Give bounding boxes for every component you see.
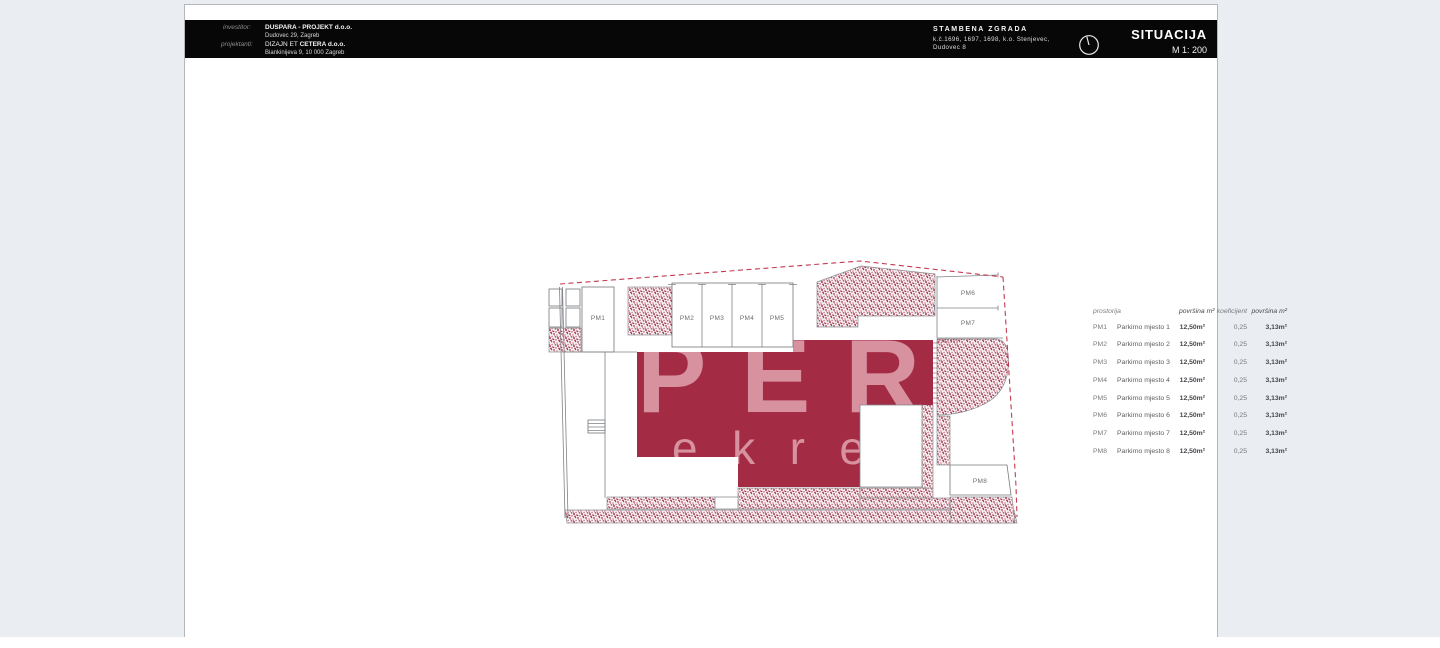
row-area: 12,50m² [1179, 342, 1205, 349]
row-area: 12,50m² [1179, 431, 1205, 438]
row-coef: 0,25 [1205, 396, 1247, 403]
row-area: 12,50m² [1179, 396, 1205, 403]
viewport-bottom-strip [0, 637, 1440, 648]
row-id: PM5 [1093, 396, 1117, 403]
courtyard-notch [860, 405, 922, 487]
paving-southeast [950, 497, 1015, 523]
stairs [588, 420, 605, 433]
row-coef: 0,25 [1205, 449, 1247, 456]
row-area2: 3,13m² [1247, 325, 1287, 332]
table-row: PM1Parkirno mjesto 112,50m²0,253,13m² [1093, 319, 1287, 337]
label-pm2: PM2 [680, 315, 694, 322]
designer-label: projektanti: [221, 41, 253, 48]
row-name: Parkirno mjesto 2 [1117, 342, 1179, 349]
label-pm8: PM8 [973, 478, 987, 485]
hatch-rect-north [628, 287, 672, 335]
row-area2: 3,13m² [1247, 413, 1287, 420]
row-area: 12,50m² [1179, 449, 1205, 456]
designer-name-bold: CETERA d.o.o. [300, 41, 346, 48]
row-area: 12,50m² [1179, 325, 1205, 332]
row-name: Parkirno mjesto 7 [1117, 431, 1179, 438]
paving-band-right [860, 488, 933, 498]
label-pm1: PM1 [591, 315, 605, 322]
site-plan: PER ekre [535, 253, 1027, 531]
paving-band-mid [738, 488, 860, 509]
paving-band-left [607, 497, 715, 509]
table-header-row: prostorija površina m² koeficijent površ… [1093, 305, 1287, 319]
row-area2: 3,13m² [1247, 431, 1287, 438]
row-coef: 0,25 [1205, 413, 1247, 420]
table-row: PM3Parkirno mjesto 312,50m²0,253,13m² [1093, 355, 1287, 373]
label-pm4: PM4 [740, 315, 754, 322]
table-row: PM7Parkirno mjesto 712,50m²0,253,13m² [1093, 426, 1287, 444]
header-prostorija: prostorija [1093, 309, 1179, 316]
row-area2: 3,13m² [1247, 360, 1287, 367]
row-coef: 0,25 [1205, 360, 1247, 367]
row-area2: 3,13m² [1247, 342, 1287, 349]
designer-name: DIZAJN ET CETERA d.o.o. [265, 41, 345, 48]
investor-label: investitor: [223, 24, 251, 31]
row-area: 12,50m² [1179, 413, 1205, 420]
row-name: Parkirno mjesto 5 [1117, 396, 1179, 403]
table-row: PM6Parkirno mjesto 612,50m²0,253,13m² [1093, 408, 1287, 426]
paving-strip-east [937, 416, 950, 465]
row-id: PM3 [1093, 360, 1117, 367]
row-area2: 3,13m² [1247, 449, 1287, 456]
bottom-paving-strip [565, 510, 1017, 523]
paving-band-right2 [860, 498, 950, 509]
table-row: PM5Parkirno mjesto 512,50m²0,253,13m² [1093, 390, 1287, 408]
investor-name: DUSPARA - PROJEKT d.o.o. [265, 24, 352, 31]
row-id: PM7 [1093, 431, 1117, 438]
label-pm7: PM7 [961, 320, 975, 327]
row-coef: 0,25 [1205, 342, 1247, 349]
label-pm5: PM5 [770, 315, 784, 322]
table-row: PM2Parkirno mjesto 212,50m²0,253,13m² [1093, 337, 1287, 355]
row-id: PM6 [1093, 413, 1117, 420]
hatch-blob-east [937, 339, 1008, 415]
row-area: 12,50m² [1179, 378, 1205, 385]
project-address: Dudovec 8 [933, 44, 966, 51]
drawing-scale: M 1: 200 [1131, 45, 1207, 55]
row-name: Parkirno mjesto 3 [1117, 360, 1179, 367]
row-name: Parkirno mjesto 6 [1117, 413, 1179, 420]
pm6-top-line [937, 275, 998, 277]
row-id: PM1 [1093, 325, 1117, 332]
row-coef: 0,25 [1205, 325, 1247, 332]
white-step [715, 497, 738, 509]
header-povrsina-2: površina m² [1247, 309, 1287, 316]
paving-strip-vertical [922, 405, 933, 488]
hatch-polygon-northeast [817, 266, 935, 327]
row-coef: 0,25 [1205, 378, 1247, 385]
row-area: 12,50m² [1179, 360, 1205, 367]
row-id: PM2 [1093, 342, 1117, 349]
row-area2: 3,13m² [1247, 378, 1287, 385]
label-pm3: PM3 [710, 315, 724, 322]
row-id: PM8 [1093, 449, 1117, 456]
row-id: PM4 [1093, 378, 1117, 385]
drawing-title: SITUACIJA [1131, 27, 1207, 42]
row-name: Parkirno mjesto 4 [1117, 378, 1179, 385]
investor-address: Dudovec 29, Zagreb [265, 33, 319, 39]
row-name: Parkirno mjesto 1 [1117, 325, 1179, 332]
storage-box [566, 308, 580, 327]
project-title: STAMBENA ZGRADA [933, 26, 1028, 33]
label-pm6: PM6 [961, 290, 975, 297]
designer-name-prefix: DIZAJN ET [265, 41, 300, 48]
table-row: PM4Parkirno mjesto 412,50m²0,253,13m² [1093, 372, 1287, 390]
table-row: PM8Parkirno mjesto 812,50m²0,253,13m² [1093, 444, 1287, 462]
hatch-square-west [549, 328, 581, 352]
row-name: Parkirno mjesto 8 [1117, 449, 1179, 456]
project-parcels: k.č.1696, 1697, 1698, k.o. Stenjevec, [933, 36, 1050, 43]
row-coef: 0,25 [1205, 431, 1247, 438]
header-povrsina: površina m² [1179, 309, 1205, 316]
title-block-bar: investitor: DUSPARA - PROJEKT d.o.o. Dud… [185, 20, 1217, 58]
header-koeficijent: koeficijent [1205, 309, 1247, 316]
row-area2: 3,13m² [1247, 396, 1287, 403]
storage-box [566, 289, 580, 306]
designer-address: Biankinijeva 9, 10 000 Zagreb [265, 50, 344, 56]
boundary-dashed-north [560, 261, 1003, 284]
screenshot-root: { "title_block": { "investor_label": "in… [0, 0, 1440, 648]
parking-table: prostorija površina m² koeficijent površ… [1093, 305, 1287, 461]
drawing-sheet: investitor: DUSPARA - PROJEKT d.o.o. Dud… [184, 4, 1218, 648]
north-indicator-icon [1077, 33, 1101, 57]
drawing-title-group: SITUACIJA M 1: 200 [1131, 27, 1207, 55]
